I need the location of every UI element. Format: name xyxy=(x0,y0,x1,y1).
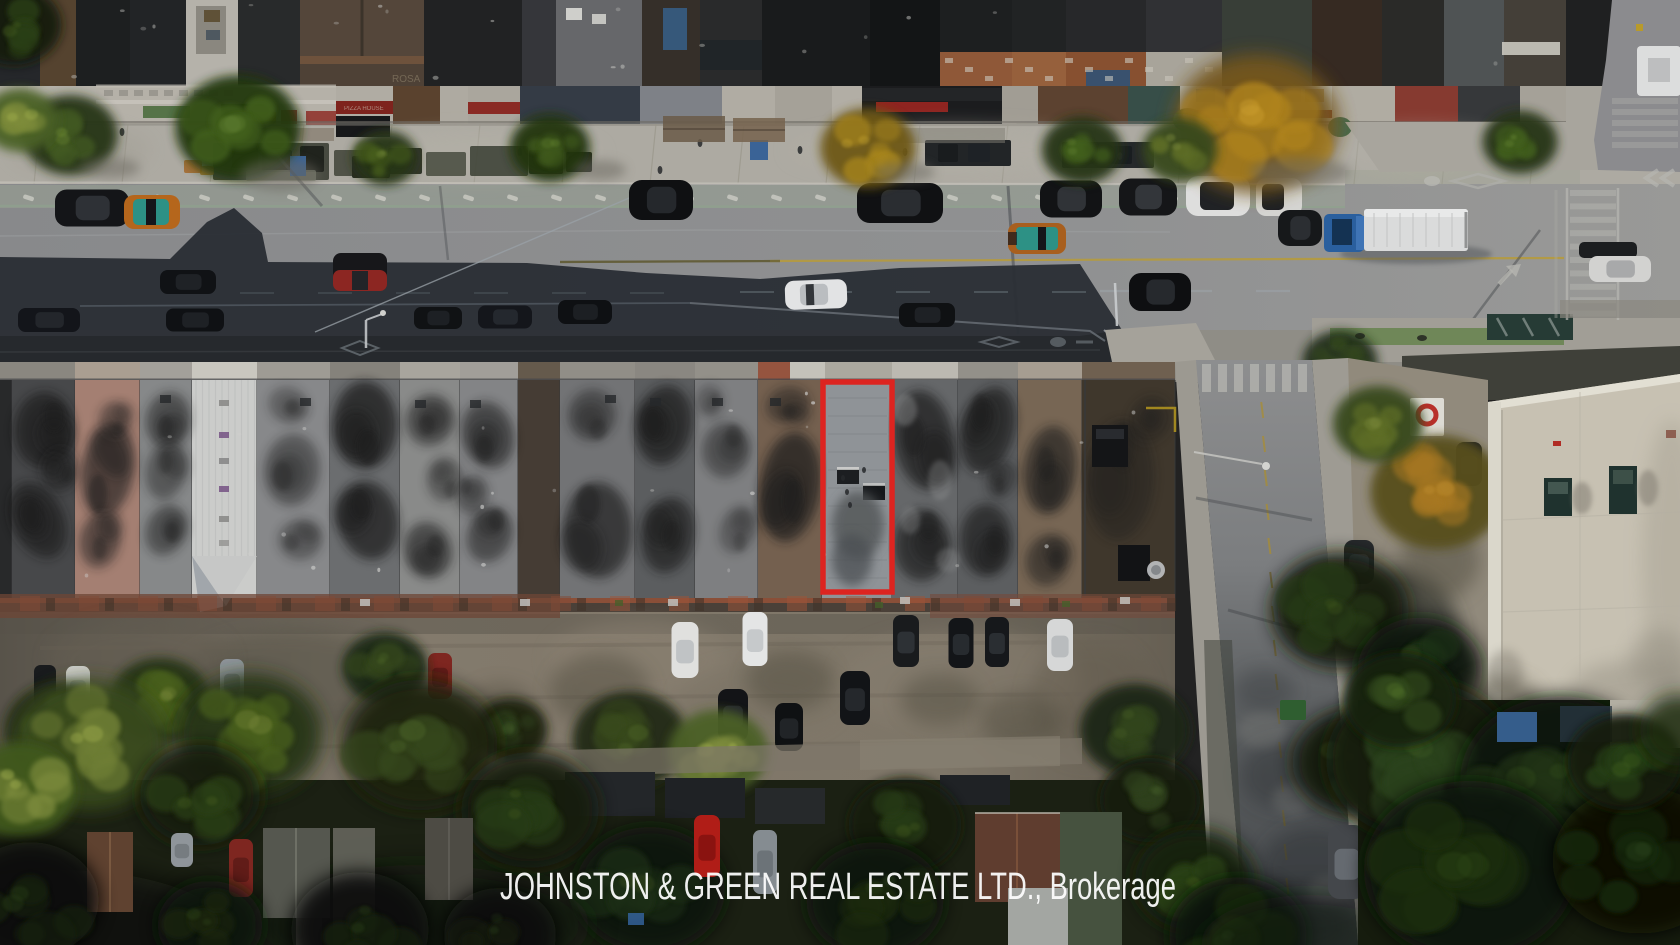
svg-text:PIZZA HOUSE: PIZZA HOUSE xyxy=(344,106,384,112)
svg-text:ROSA: ROSA xyxy=(392,74,421,85)
svg-text:JOHNSTON & GREEN REAL ESTATE L: JOHNSTON & GREEN REAL ESTATE LTD., Broke… xyxy=(500,866,1176,908)
